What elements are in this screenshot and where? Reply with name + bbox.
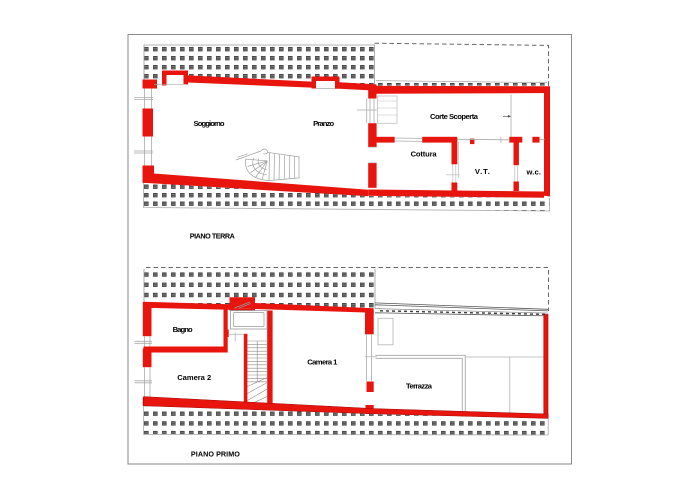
svg-text:w.c.: w.c.	[526, 168, 542, 177]
svg-text:Pranzo: Pranzo	[313, 119, 334, 128]
svg-text:Camera 2: Camera 2	[177, 373, 211, 382]
svg-text:PIANO TERRA: PIANO TERRA	[190, 232, 235, 241]
svg-text:PIANO PRIMO: PIANO PRIMO	[191, 450, 240, 459]
svg-text:Bagno: Bagno	[173, 325, 193, 334]
svg-text:Soggiorno: Soggiorno	[194, 119, 225, 128]
svg-text:Terrazza: Terrazza	[406, 381, 433, 390]
svg-text:Corte Scoperta: Corte Scoperta	[430, 112, 479, 121]
svg-text:Cottura: Cottura	[411, 150, 438, 159]
svg-text:Camera 1: Camera 1	[307, 358, 338, 367]
svg-text:V.T.: V.T.	[475, 167, 490, 176]
